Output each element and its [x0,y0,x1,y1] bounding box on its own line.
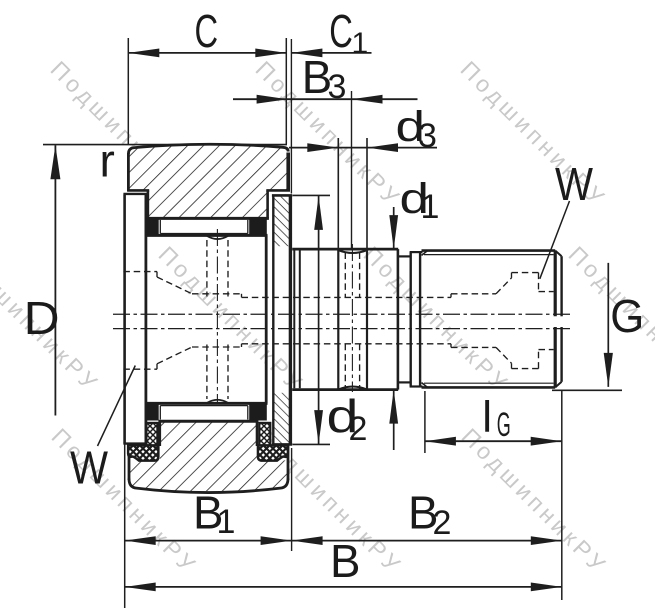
svg-text:3: 3 [328,68,347,106]
svg-text:1: 1 [217,503,236,541]
svg-text:3: 3 [418,117,437,155]
svg-text:G: G [610,290,644,342]
svg-text:C: C [329,5,353,57]
svg-text:B: B [330,535,361,587]
svg-text:l: l [482,393,492,442]
svg-text:2: 2 [433,504,452,542]
svg-text:1: 1 [352,27,369,60]
svg-text:r: r [100,135,115,187]
svg-text:D: D [24,292,60,344]
svg-text:2: 2 [349,410,368,448]
svg-text:G: G [497,406,511,444]
svg-text:W: W [70,442,109,494]
svg-text:1: 1 [421,188,440,226]
svg-text:W: W [555,158,594,210]
svg-text:C: C [195,5,219,57]
